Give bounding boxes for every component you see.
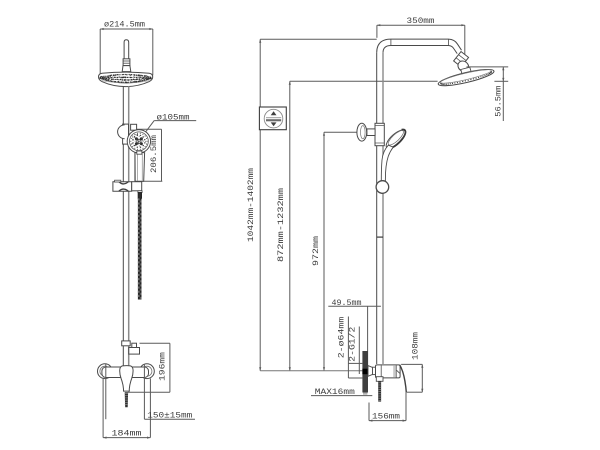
svg-text:2-ø64mm: 2-ø64mm <box>336 317 346 359</box>
svg-text:108mm: 108mm <box>411 332 421 360</box>
svg-text:56.5mm: 56.5mm <box>494 86 504 117</box>
svg-text:1042mm-1402mm: 1042mm-1402mm <box>246 168 256 242</box>
svg-text:ø214.5mm: ø214.5mm <box>104 20 145 30</box>
svg-text:2-G1/2: 2-G1/2 <box>347 327 357 362</box>
svg-text:184mm: 184mm <box>112 428 142 438</box>
svg-text:196mm: 196mm <box>157 352 167 381</box>
svg-text:972mm: 972mm <box>311 236 321 266</box>
svg-text:156mm: 156mm <box>372 411 400 421</box>
svg-text:872mm-1232mm: 872mm-1232mm <box>276 188 286 262</box>
